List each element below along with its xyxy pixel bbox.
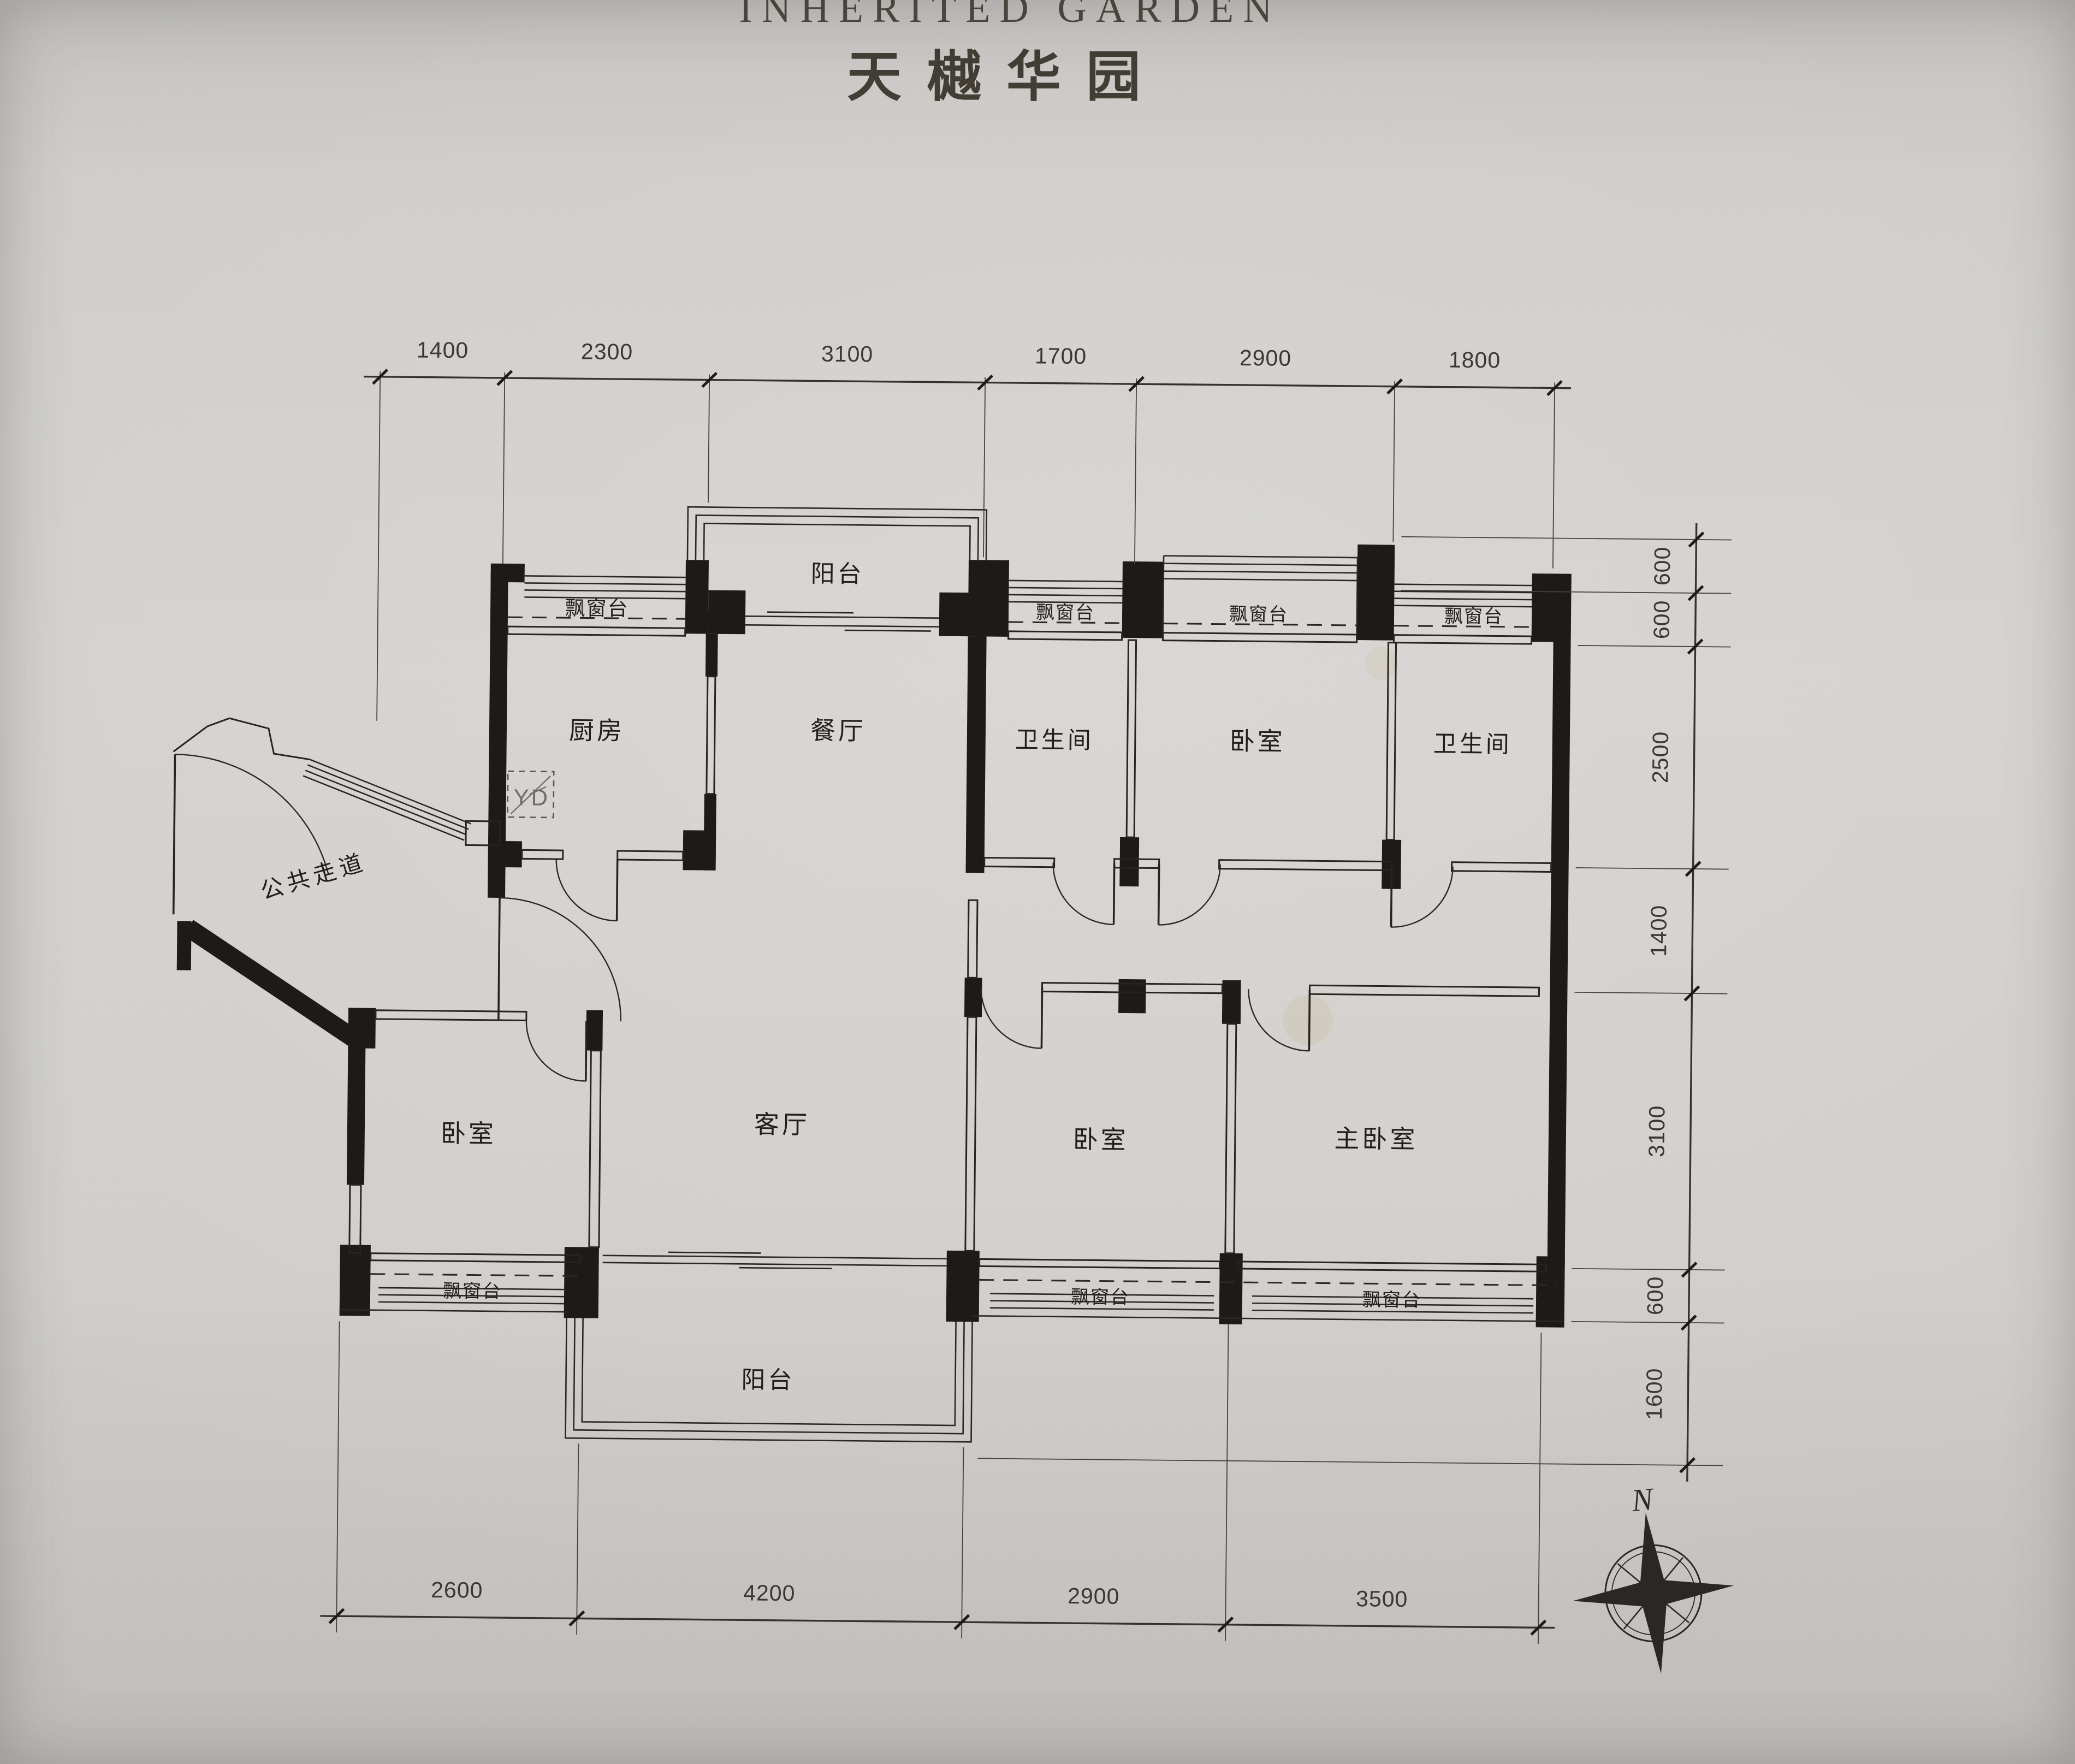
room-label-bedroom-top: 卧室 bbox=[1230, 727, 1285, 756]
yd-box: YD bbox=[507, 771, 554, 818]
floor-plan-photo: INHERITED GARDEN 天樾华园 bbox=[0, 0, 2075, 1764]
dim-right-5: 600 bbox=[1643, 1276, 1668, 1315]
bay-window-label: 飘窗台 bbox=[1229, 604, 1288, 625]
dimension-chain-right: 600 600 2500 1400 3100 600 1600 bbox=[977, 517, 1732, 1482]
room-label-kitchen: 厨房 bbox=[569, 716, 625, 745]
room-labels: 阳台 厨房 餐厅 卫生间 卧室 卫生间 公共走道 卧室 客厅 卧室 主卧室 阳台… bbox=[253, 555, 1514, 1401]
bay-window-label: 飘窗台 bbox=[1362, 1289, 1421, 1311]
paper-stain bbox=[1365, 647, 1398, 680]
room-label-dining: 餐厅 bbox=[810, 716, 866, 745]
dim-right-1: 600 bbox=[1649, 600, 1675, 639]
structural-walls bbox=[174, 533, 1572, 1327]
compass-icon: N bbox=[1562, 1474, 1741, 1682]
dim-top-3: 1700 bbox=[1035, 343, 1087, 369]
dim-bottom-2: 2900 bbox=[1068, 1583, 1120, 1609]
room-label-bedroom-left: 卧室 bbox=[441, 1119, 496, 1148]
dim-right-0: 600 bbox=[1650, 546, 1675, 585]
dimension-chain-bottom: 2600 4200 2900 3500 bbox=[320, 1316, 1557, 1644]
plan-svg: INHERITED GARDEN 天樾华园 bbox=[0, 0, 2075, 1764]
window-stripes bbox=[168, 546, 1572, 1321]
dim-right-3: 1400 bbox=[1646, 905, 1671, 957]
partition-walls bbox=[349, 625, 1554, 1271]
title-english: INHERITED GARDEN bbox=[739, 0, 1281, 31]
dim-right-6: 1600 bbox=[1641, 1368, 1667, 1420]
dim-top-0: 1400 bbox=[417, 337, 469, 363]
dim-top-5: 1800 bbox=[1449, 347, 1501, 373]
bay-window-label: 飘窗台 bbox=[565, 597, 629, 620]
dim-right-2: 2500 bbox=[1647, 731, 1673, 784]
paper-stain bbox=[1283, 995, 1333, 1045]
title-chinese: 天樾华园 bbox=[847, 47, 1166, 108]
room-label-balcony-bottom: 阳台 bbox=[741, 1366, 795, 1394]
bay-window-label: 飘窗台 bbox=[1071, 1287, 1130, 1308]
bay-window-label: 飘窗台 bbox=[1444, 606, 1503, 628]
yd-label: YD bbox=[513, 784, 550, 810]
room-label-bath-2: 卫生间 bbox=[1433, 731, 1512, 757]
room-label-master-bedroom: 主卧室 bbox=[1334, 1124, 1418, 1153]
dim-top-2: 3100 bbox=[821, 341, 874, 367]
dim-bottom-3: 3500 bbox=[1356, 1586, 1408, 1612]
north-label: N bbox=[1629, 1481, 1656, 1518]
dim-top-1: 2300 bbox=[581, 339, 633, 364]
bay-window-label: 飘窗台 bbox=[443, 1281, 502, 1302]
dim-right-4: 3100 bbox=[1644, 1105, 1670, 1158]
dim-top-4: 2900 bbox=[1240, 345, 1292, 371]
bay-window-label: 飘窗台 bbox=[1036, 602, 1095, 623]
room-label-public-corridor: 公共走道 bbox=[258, 849, 370, 904]
dim-bottom-1: 4200 bbox=[743, 1580, 796, 1606]
floor-plan: YD 阳台 厨房 餐厅 卫生间 卧室 卫生间 公共走道 卧室 客厅 卧室 主卧室… bbox=[164, 335, 1754, 1683]
room-label-living: 客厅 bbox=[754, 1110, 810, 1139]
room-label-balcony-top: 阳台 bbox=[811, 560, 864, 588]
dim-bottom-0: 2600 bbox=[431, 1577, 483, 1603]
room-label-bath-1: 卫生间 bbox=[1015, 727, 1094, 754]
room-label-bedroom-mid: 卧室 bbox=[1073, 1125, 1129, 1154]
